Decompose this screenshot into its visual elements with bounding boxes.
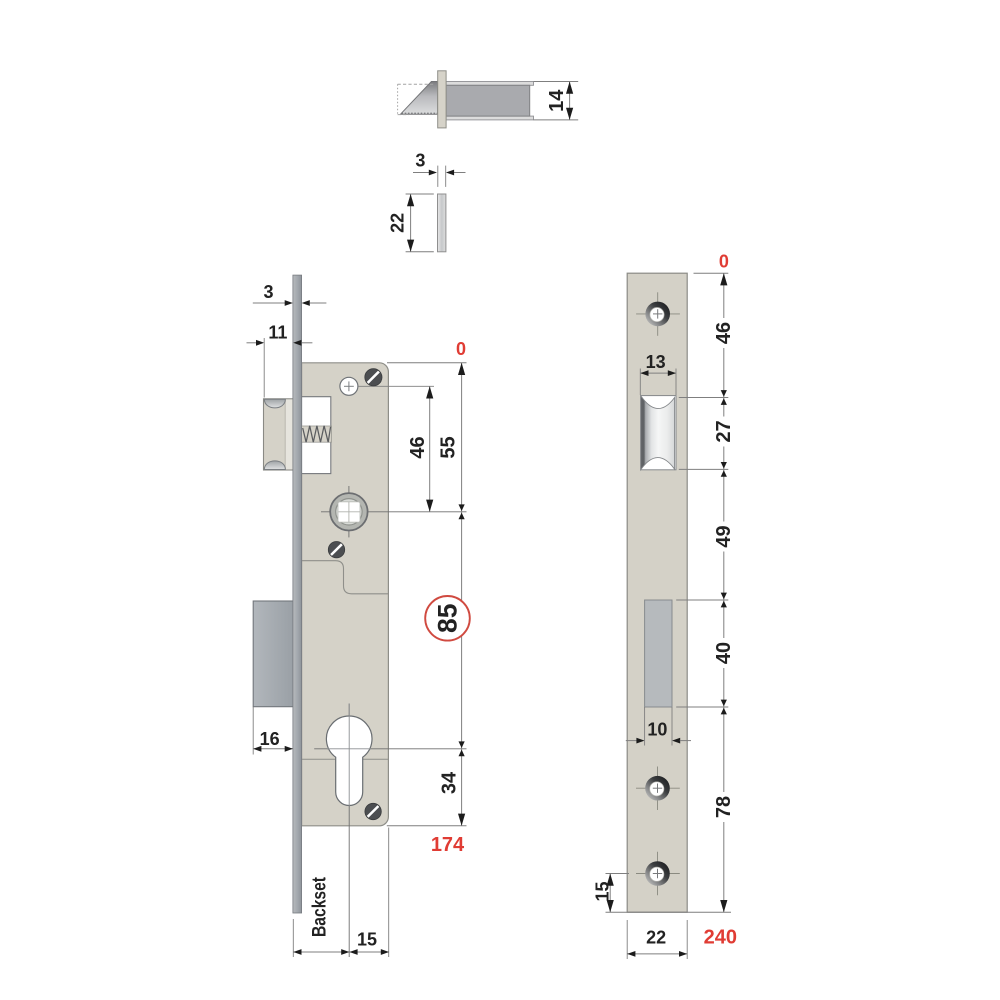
svg-text:13: 13 bbox=[646, 352, 666, 372]
svg-text:240: 240 bbox=[704, 927, 737, 949]
svg-text:22: 22 bbox=[646, 928, 666, 948]
svg-text:10: 10 bbox=[647, 720, 667, 740]
svg-text:11: 11 bbox=[268, 322, 287, 342]
svg-text:22: 22 bbox=[388, 213, 408, 233]
svg-text:27: 27 bbox=[713, 420, 735, 442]
svg-text:3: 3 bbox=[415, 151, 425, 171]
svg-text:15: 15 bbox=[593, 881, 613, 901]
svg-text:0: 0 bbox=[719, 252, 729, 272]
svg-text:49: 49 bbox=[713, 525, 735, 547]
svg-text:78: 78 bbox=[713, 796, 735, 818]
svg-text:46: 46 bbox=[713, 322, 735, 344]
svg-text:Backset: Backset bbox=[310, 876, 331, 937]
svg-text:174: 174 bbox=[431, 834, 465, 856]
svg-text:55: 55 bbox=[437, 436, 459, 458]
svg-text:40: 40 bbox=[713, 642, 735, 664]
svg-text:3: 3 bbox=[263, 282, 273, 302]
svg-text:46: 46 bbox=[407, 436, 429, 458]
svg-text:16: 16 bbox=[260, 729, 280, 749]
svg-text:14: 14 bbox=[546, 89, 568, 112]
svg-text:15: 15 bbox=[357, 929, 377, 949]
svg-text:34: 34 bbox=[439, 771, 461, 794]
svg-text:85: 85 bbox=[433, 604, 463, 633]
svg-text:0: 0 bbox=[456, 339, 466, 359]
